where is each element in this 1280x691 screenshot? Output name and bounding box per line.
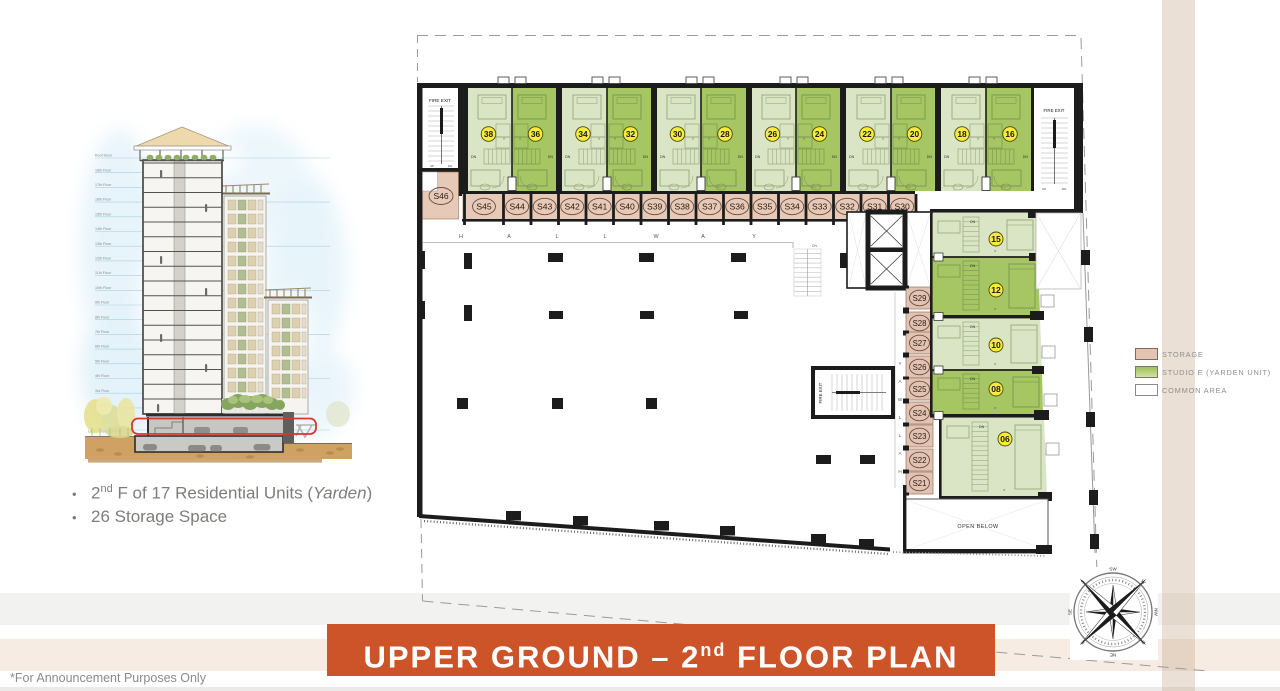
- svg-text:S21: S21: [913, 479, 927, 488]
- svg-text:11th Floor: 11th Floor: [95, 271, 112, 275]
- svg-text:L: L: [899, 433, 902, 438]
- svg-text:DN: DN: [755, 155, 761, 159]
- svg-text:12: 12: [991, 285, 1001, 295]
- svg-text:DN: DN: [979, 425, 985, 429]
- svg-text:16th Floor: 16th Floor: [95, 198, 112, 202]
- svg-text:06: 06: [1000, 434, 1010, 444]
- svg-text:22: 22: [862, 129, 872, 139]
- svg-text:36: 36: [531, 129, 541, 139]
- svg-text:S33: S33: [812, 202, 828, 212]
- svg-text:S40: S40: [620, 202, 636, 212]
- svg-text:6th Floor: 6th Floor: [95, 345, 110, 349]
- svg-text:18th Floor: 18th Floor: [95, 168, 112, 172]
- svg-text:38: 38: [484, 129, 494, 139]
- svg-text:34: 34: [578, 129, 588, 139]
- svg-text:NE: NE: [1110, 652, 1116, 657]
- svg-text:12th Floor: 12th Floor: [95, 257, 112, 261]
- svg-text:W: W: [898, 397, 903, 402]
- svg-text:L: L: [604, 234, 607, 240]
- svg-text:Roof Deck: Roof Deck: [95, 154, 112, 158]
- svg-text:30: 30: [673, 129, 683, 139]
- svg-text:UP: UP: [430, 164, 434, 168]
- svg-text:15: 15: [991, 234, 1001, 244]
- svg-text:14th Floor: 14th Floor: [95, 227, 112, 231]
- svg-text:S24: S24: [913, 409, 928, 418]
- svg-text:DN: DN: [970, 325, 976, 329]
- svg-text:DN: DN: [970, 377, 976, 381]
- svg-text:NW: NW: [1153, 608, 1158, 616]
- svg-text:DN: DN: [832, 155, 838, 159]
- svg-text:S34: S34: [785, 202, 801, 212]
- svg-text:28: 28: [720, 129, 730, 139]
- svg-text:A: A: [898, 451, 902, 456]
- svg-text:4th Floor: 4th Floor: [95, 374, 110, 378]
- svg-text:S41: S41: [592, 202, 608, 212]
- svg-text:7th Floor: 7th Floor: [95, 330, 110, 334]
- svg-text:S32: S32: [840, 202, 856, 212]
- svg-text:OPEN BELOW: OPEN BELOW: [957, 524, 999, 530]
- svg-text:S22: S22: [913, 456, 927, 465]
- svg-text:FIRE EXIT: FIRE EXIT: [1044, 108, 1065, 113]
- svg-text:DN: DN: [970, 220, 976, 224]
- svg-text:FIRE EXIT: FIRE EXIT: [429, 98, 451, 103]
- svg-text:DN: DN: [565, 155, 571, 159]
- svg-text:DN: DN: [448, 164, 452, 168]
- svg-text:10: 10: [991, 340, 1001, 350]
- svg-text:8th Floor: 8th Floor: [95, 315, 110, 319]
- svg-text:W: W: [653, 234, 659, 240]
- svg-text:S35: S35: [757, 202, 773, 212]
- svg-text:A: A: [898, 379, 902, 384]
- svg-text:08: 08: [991, 384, 1001, 394]
- svg-text:DN: DN: [471, 155, 477, 159]
- svg-text:DN: DN: [548, 155, 554, 159]
- svg-text:SE: SE: [1068, 609, 1073, 615]
- svg-text:L: L: [556, 234, 559, 240]
- svg-text:UP: UP: [1042, 187, 1046, 191]
- svg-text:S36: S36: [730, 202, 746, 212]
- svg-text:S45: S45: [476, 202, 492, 212]
- svg-text:S44: S44: [510, 202, 526, 212]
- svg-text:5th Floor: 5th Floor: [95, 359, 110, 363]
- svg-text:L: L: [899, 415, 902, 420]
- svg-text:S27: S27: [913, 339, 927, 348]
- svg-text:DN: DN: [643, 155, 649, 159]
- svg-text:20: 20: [910, 129, 920, 139]
- svg-text:13th Floor: 13th Floor: [95, 242, 112, 246]
- svg-text:A: A: [701, 234, 705, 240]
- svg-text:S37: S37: [702, 202, 718, 212]
- svg-text:DN: DN: [944, 155, 950, 159]
- svg-text:S26: S26: [913, 363, 927, 372]
- svg-text:A: A: [507, 234, 511, 240]
- svg-text:16: 16: [1005, 129, 1015, 139]
- svg-text:H: H: [459, 234, 463, 240]
- svg-text:H: H: [898, 469, 901, 474]
- svg-text:9th Floor: 9th Floor: [95, 301, 110, 305]
- svg-text:DN: DN: [927, 155, 933, 159]
- svg-text:S29: S29: [913, 294, 927, 303]
- svg-text:24: 24: [815, 129, 825, 139]
- svg-text:Y: Y: [752, 234, 756, 240]
- svg-text:S42: S42: [565, 202, 581, 212]
- svg-text:S28: S28: [913, 319, 927, 328]
- svg-text:FIRE EXIT: FIRE EXIT: [818, 382, 823, 403]
- svg-text:DN: DN: [738, 155, 744, 159]
- svg-text:Y: Y: [898, 361, 901, 366]
- svg-text:DN: DN: [1062, 187, 1066, 191]
- svg-text:3rd Floor: 3rd Floor: [95, 389, 110, 393]
- svg-text:DN: DN: [1023, 155, 1029, 159]
- svg-text:15th Floor: 15th Floor: [95, 212, 112, 216]
- svg-text:32: 32: [626, 129, 636, 139]
- svg-text:S23: S23: [913, 432, 927, 441]
- svg-text:SW: SW: [1109, 567, 1117, 572]
- svg-text:S38: S38: [675, 202, 691, 212]
- svg-text:S25: S25: [913, 385, 928, 394]
- svg-text:18: 18: [957, 129, 967, 139]
- svg-text:S46: S46: [433, 191, 448, 201]
- svg-text:DN: DN: [970, 264, 976, 268]
- svg-text:DN: DN: [849, 155, 855, 159]
- svg-text:26: 26: [768, 129, 778, 139]
- svg-text:S43: S43: [537, 202, 553, 212]
- svg-text:S39: S39: [647, 202, 663, 212]
- svg-text:DN: DN: [812, 244, 817, 248]
- svg-text:DN: DN: [660, 155, 666, 159]
- svg-text:10th Floor: 10th Floor: [95, 286, 112, 290]
- svg-text:17th Floor: 17th Floor: [95, 183, 112, 187]
